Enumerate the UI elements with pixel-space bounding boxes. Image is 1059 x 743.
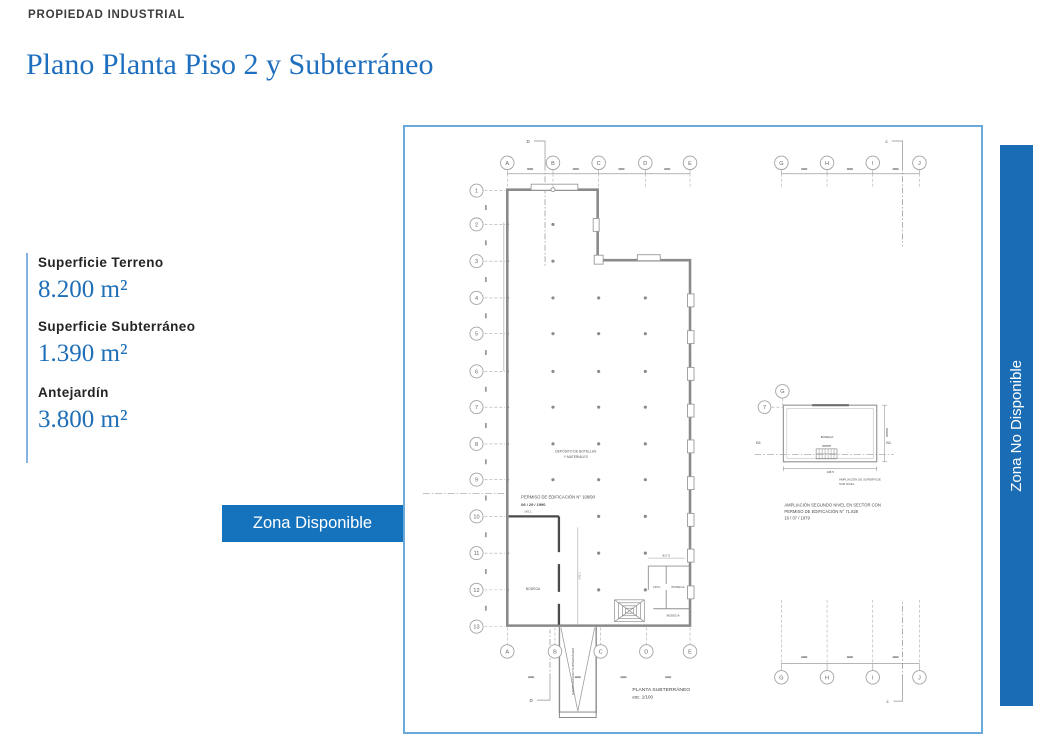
row-2-label: 2: [475, 222, 478, 228]
row-1-label: 1: [475, 189, 478, 195]
bodega-label: BODEGA: [526, 587, 541, 591]
column-dot: [551, 406, 554, 409]
plan-scale: esc. 1/100: [632, 695, 653, 700]
column-dot: [644, 515, 647, 518]
col-J-label: J: [918, 161, 921, 167]
column-dot: [644, 442, 647, 445]
plan-title: PLANTA SUBTERRÁNEO: [632, 686, 690, 693]
dim-mark: [619, 168, 625, 170]
column-dot: [506, 406, 509, 409]
dim-mark: [485, 387, 487, 392]
annex-caption-line2: SUB NIVEL: [839, 482, 855, 486]
column-dot: [597, 478, 600, 481]
ampliacion-line1: AMPLIACIÓN SEGUNDO NIVEL EN SECTOR CON: [784, 502, 881, 507]
row-8-label: 8: [475, 442, 478, 448]
bodega-right-label: BODEGA: [672, 585, 686, 589]
column-dot: [551, 296, 554, 299]
dim-mark: [801, 168, 807, 170]
dim-mark: [485, 606, 487, 611]
step-corner-column: [594, 255, 603, 264]
column-dot: [506, 515, 509, 518]
stair-core: [615, 600, 645, 622]
wall-opening-c: [593, 218, 599, 231]
column-dot: [644, 552, 647, 555]
col-bottom-D-label: D: [644, 649, 648, 655]
col-C-label: C: [597, 161, 601, 167]
row-12-label: 12: [473, 588, 479, 594]
dim-mark: [485, 569, 487, 574]
row-6-label: 6: [475, 369, 478, 375]
permiso-line2: 06 / 29 / 1990: [521, 502, 546, 507]
ramp-label: RAMPA ACCESO SUBTERRÁNEO: [571, 647, 575, 694]
permiso-line1: PERMISO DE EDIFICACIÓN N° 108/90: [521, 495, 595, 500]
e-wall-opening: [688, 404, 694, 417]
axis-lines: [507, 174, 919, 664]
deposito-line1: DEPÓSITO DE BOTELLAS: [555, 448, 597, 453]
dim-mark: [664, 168, 670, 170]
column-dot: [551, 223, 554, 226]
col-D-label: D: [643, 161, 647, 167]
column-dot: [644, 478, 647, 481]
e-wall-opening: [688, 513, 694, 526]
dim-mark: [485, 277, 487, 282]
bracket-label-bottom-right: c: [887, 699, 890, 704]
e-wall-opening: [688, 440, 694, 453]
dim-mark: [621, 676, 627, 678]
column-dot: [506, 370, 509, 373]
annex-dim-bottom: 138.5: [826, 470, 834, 474]
step-canopy: [637, 255, 660, 261]
annex-row-7-label: 7: [763, 405, 766, 411]
column-dot: [506, 589, 509, 592]
stats-accent-line: [26, 253, 28, 463]
stat-label-terreno: Superficie Terreno: [38, 255, 268, 270]
bodega-lower-label: BODEGA: [667, 614, 681, 618]
column-dot: [506, 260, 509, 263]
dim-mark: [485, 423, 487, 428]
dim-mark: [485, 459, 487, 464]
floor-plan-drawing: D c D c: [405, 127, 981, 732]
row-5-label: 5: [475, 332, 478, 338]
dim-mark: [847, 168, 853, 170]
column-dot: [644, 406, 647, 409]
dim-mark: [893, 168, 899, 170]
bracket-label-top-right: c: [886, 139, 889, 144]
column-dot: [551, 442, 554, 445]
wall-column-b: [551, 188, 555, 192]
dim-mark: [485, 205, 487, 210]
dim-mark: [527, 168, 533, 170]
col-bottom-J-label: J: [918, 675, 921, 681]
datum-brackets: [534, 141, 902, 701]
col-bottom-A-label: A: [505, 649, 509, 655]
column-dot: [506, 332, 509, 335]
page-kicker: PROPIEDAD INDUSTRIAL: [28, 9, 185, 21]
column-dot: [551, 332, 554, 335]
dim-mark: [847, 656, 853, 658]
col-E-label: E: [688, 161, 692, 167]
column-dot: [597, 442, 600, 445]
col-bottom-C-label: C: [599, 649, 603, 655]
column-dot: [597, 588, 600, 591]
dim-mark: [485, 350, 487, 355]
column-dot: [506, 443, 509, 446]
row-7-label: 7: [475, 405, 478, 411]
bracket-label-bottom-left: D: [530, 698, 533, 703]
col-B-label: B: [551, 161, 555, 167]
zona-no-disponible-bar: Zona No Disponible: [1000, 145, 1033, 706]
column-dot: [597, 515, 600, 518]
slide: PROPIEDAD INDUSTRIAL Plano Planta Piso 2…: [0, 0, 1059, 743]
dim-mark: [485, 240, 487, 245]
e-wall-opening: [688, 477, 694, 490]
e-wall-opening: [688, 586, 694, 599]
stat-value-terreno: 8.200 m²: [38, 275, 268, 305]
grid-generated: ABCDEGHIJ12345678910111213ABCDEGHIJG7: [470, 156, 926, 684]
ofic-label: OFIC.: [653, 585, 661, 589]
dim-mark: [528, 676, 534, 678]
room-dim-rotated: 142.1: [577, 572, 581, 580]
column-dot: [597, 296, 600, 299]
e-wall-opening: [688, 331, 694, 344]
zona-disponible-label: Zona Disponible: [253, 514, 372, 533]
col-bottom-G-label: G: [779, 675, 783, 681]
col-A-label: A: [505, 161, 509, 167]
annex-b1-left: B1: [756, 440, 762, 445]
page-title: Plano Planta Piso 2 y Subterráneo: [26, 48, 433, 82]
column-dot: [644, 370, 647, 373]
annex-bodega-label: BODEGA: [821, 435, 834, 439]
row-3-label: 3: [475, 259, 478, 265]
stat-value-subterraneo: 1.390 m²: [38, 339, 268, 369]
bracket-label-top-left: D: [527, 139, 530, 144]
e-wall-opening: [688, 549, 694, 562]
column-dot: [597, 370, 600, 373]
column-dot: [506, 552, 509, 555]
column-dot: [644, 588, 647, 591]
stats-panel: Superficie Terreno 8.200 m² Superficie S…: [38, 255, 268, 435]
column-dot: [506, 223, 509, 226]
ampliacion-line2: PERMISO DE EDIFICACIÓN N° 71.828: [784, 509, 858, 514]
annex-caption-line1: AMPLIACIÓN DE SUPERFICIE: [839, 477, 881, 482]
dim-mark: [893, 656, 899, 658]
dim-mark: [801, 656, 807, 658]
col-bottom-B-label: B: [553, 649, 557, 655]
column-dot: [597, 552, 600, 555]
column-dot: [551, 370, 554, 373]
stat-label-subterraneo: Superficie Subterráneo: [38, 319, 268, 334]
dim-mark: [485, 496, 487, 501]
col-bottom-E-label: E: [688, 649, 692, 655]
dim-mark: [665, 676, 671, 678]
column-dot: [551, 260, 554, 263]
row-10-label: 10: [473, 514, 479, 520]
row-4-label: 4: [475, 296, 478, 302]
floor-plan-frame: D c D c: [403, 125, 983, 734]
zona-disponible-badge: Zona Disponible: [222, 505, 403, 542]
annex-b1-right: B1: [886, 440, 892, 445]
rooms-dim-label: 817.5: [662, 554, 670, 558]
deposito-line2: Y MATERIALES: [564, 455, 589, 459]
col-H-label: H: [825, 161, 829, 167]
stat-label-antejardin: Antejardín: [38, 385, 268, 400]
column-dot: [506, 478, 509, 481]
e-wall-opening: [688, 367, 694, 380]
ramp: [559, 627, 596, 718]
column-dot: [506, 297, 509, 300]
column-dot: [597, 406, 600, 409]
e-wall-opening: [688, 294, 694, 307]
dim-mark: [575, 676, 581, 678]
row-13-label: 13: [473, 625, 479, 631]
column-dot: [644, 296, 647, 299]
storage-room-walls: [508, 516, 559, 624]
zona-no-disponible-label: Zona No Disponible: [1008, 360, 1025, 492]
annex-col-g-label: G: [780, 389, 784, 395]
column-dot: [597, 332, 600, 335]
permiso-dim: 142.1: [524, 509, 532, 513]
dim-mark: [485, 313, 487, 318]
dim-mark: [573, 168, 579, 170]
column-dot: [644, 332, 647, 335]
row-11-label: 11: [474, 551, 480, 557]
ampliacion-line3: 16 / 07 / 1979: [784, 515, 810, 520]
col-G-label: G: [779, 161, 783, 167]
row-9-label: 9: [475, 478, 478, 484]
stat-value-antejardin: 3.800 m²: [38, 405, 268, 435]
column-dot: [551, 478, 554, 481]
dim-mark: [485, 532, 487, 537]
col-bottom-H-label: H: [825, 675, 829, 681]
